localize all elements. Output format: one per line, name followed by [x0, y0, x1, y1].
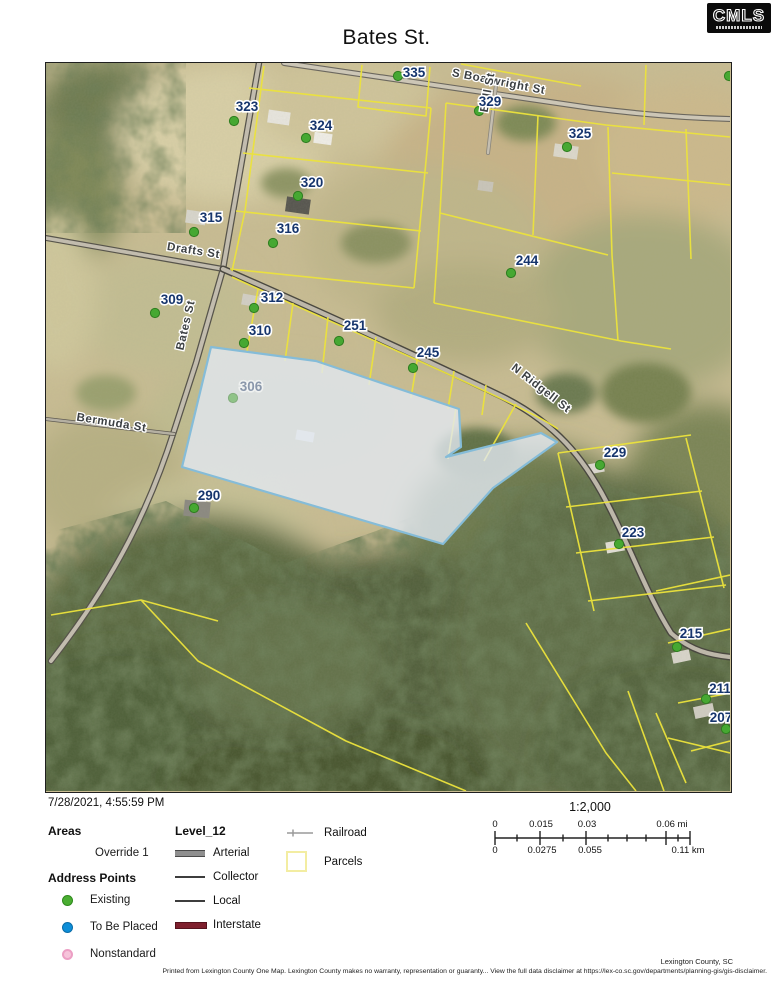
- address-point-207: [721, 724, 730, 733]
- address-point-244: [506, 268, 515, 277]
- map-scale-ratio: 1:2,000: [490, 800, 690, 814]
- cmls-logo-text: CMLS: [713, 8, 765, 24]
- address-point-316: [268, 238, 277, 247]
- cmls-logo: CMLS: [707, 3, 771, 33]
- legend-interstate-item: Interstate: [175, 919, 285, 931]
- address-point-324: [301, 133, 310, 142]
- parcel-label-309: 309: [161, 292, 184, 307]
- legend-arterial-item: Arterial: [175, 847, 285, 859]
- legend-level12-header: Level_12: [175, 824, 285, 838]
- aerial-map: Drafts StBates StBermuda StN Ridgell StS…: [45, 62, 732, 793]
- parcel-label-315: 315: [200, 210, 223, 225]
- address-point-251: [334, 336, 343, 345]
- parcel-label-312: 312: [261, 290, 284, 305]
- legend-tobeplaced-item: To Be Placed: [62, 921, 188, 933]
- address-point-323: [229, 116, 238, 125]
- interstate-line-icon: [175, 922, 207, 929]
- parcel-label-251: 251: [344, 318, 367, 333]
- legend-railroad-label: Railroad: [324, 827, 367, 839]
- address-point-223: [614, 539, 623, 548]
- address-point-310: [239, 338, 248, 347]
- cmls-logo-subtext: [716, 26, 762, 29]
- aerial-map-canvas: Drafts StBates StBermuda StN Ridgell StS…: [46, 63, 730, 791]
- railroad-line-icon: [286, 828, 314, 838]
- scale-km-3: 0.11 km: [671, 845, 704, 856]
- address-point-315: [189, 227, 198, 236]
- local-line-icon: [175, 900, 205, 902]
- scale-km-1: 0.0275: [527, 845, 556, 856]
- address-point-306: [228, 393, 237, 402]
- address-point-320: [293, 191, 302, 200]
- scale-km-2: 0.055: [578, 845, 602, 856]
- parcel-label-323: 323: [236, 99, 259, 114]
- collector-line-icon: [175, 876, 205, 878]
- parcel-label-290: 290: [198, 488, 221, 503]
- scale-mi-1: 0.015: [529, 819, 553, 830]
- legend-parcels-label: Parcels: [324, 856, 362, 868]
- legend-column-areas: Areas Override 1 Address Points Existing…: [48, 824, 188, 975]
- legend-local-label: Local: [213, 895, 241, 907]
- scale-km-0: 0: [492, 845, 497, 856]
- parcel-label-310: 310: [249, 323, 272, 338]
- legend-parcels-item: Parcels: [286, 851, 396, 872]
- nonstandard-point-icon: [62, 949, 73, 960]
- parcel-label-306: 306: [240, 379, 263, 394]
- address-point-309: [150, 308, 159, 317]
- scale-mi-3: 0.06 mi: [656, 819, 687, 830]
- legend-existing-label: Existing: [90, 894, 130, 906]
- scale-mi-2: 0.03: [578, 819, 597, 830]
- parcel-label-324: 324: [310, 118, 333, 133]
- address-point-245: [408, 363, 417, 372]
- parcel-label-211: 211: [709, 681, 730, 696]
- legend-column-misc: Railroad Parcels: [286, 827, 396, 884]
- parcel-label-215: 215: [680, 626, 703, 641]
- parcel-label-229: 229: [604, 445, 627, 460]
- legend-collector-item: Collector: [175, 871, 285, 883]
- address-point-229: [595, 460, 604, 469]
- parcel-label-329: 329: [479, 94, 502, 109]
- parcel-label-245: 245: [417, 345, 440, 360]
- legend-address-points-header: Address Points: [48, 871, 188, 885]
- parcel-label-244: 244: [516, 253, 539, 268]
- address-point-312: [249, 303, 258, 312]
- print-disclaimer: Printed from Lexington County One Map. L…: [48, 968, 767, 975]
- parcel-label-207: 207: [710, 710, 730, 725]
- legend-nonstandard-item: Nonstandard: [62, 948, 188, 960]
- print-timestamp: 7/28/2021, 4:55:59 PM: [48, 797, 164, 809]
- legend-areas-header: Areas: [48, 824, 188, 838]
- legend-railroad-item: Railroad: [286, 827, 396, 839]
- address-point-325: [562, 142, 571, 151]
- address-point-290: [189, 503, 198, 512]
- parcel-label-325: 325: [569, 126, 592, 141]
- legend-column-roads: Level_12 Arterial Collector Local Inters…: [175, 824, 285, 943]
- parcel-label-316: 316: [277, 221, 300, 236]
- legend-local-item: Local: [175, 895, 285, 907]
- address-point-extra-0: [724, 71, 730, 80]
- legend-tobeplaced-label: To Be Placed: [90, 921, 158, 933]
- legend-interstate-label: Interstate: [213, 919, 261, 931]
- existing-point-icon: [62, 895, 73, 906]
- parcel-label-335: 335: [403, 65, 426, 80]
- parcels-swatch-icon: [286, 851, 307, 872]
- county-credit: Lexington County, SC: [661, 957, 733, 966]
- legend-nonstandard-label: Nonstandard: [90, 948, 156, 960]
- parcel-label-223: 223: [622, 525, 645, 540]
- address-point-215: [672, 642, 681, 651]
- arterial-line-icon: [175, 850, 205, 857]
- address-point-335: [393, 71, 402, 80]
- page-title: Bates St.: [0, 26, 773, 50]
- legend-arterial-label: Arterial: [213, 847, 249, 859]
- to-be-placed-point-icon: [62, 922, 73, 933]
- legend-existing-item: Existing: [62, 894, 188, 906]
- scale-mi-0: 0: [492, 819, 497, 830]
- parcel-label-320: 320: [301, 175, 324, 190]
- map-printout-page: Bates St. CMLS: [0, 0, 773, 1000]
- legend-collector-label: Collector: [213, 871, 258, 883]
